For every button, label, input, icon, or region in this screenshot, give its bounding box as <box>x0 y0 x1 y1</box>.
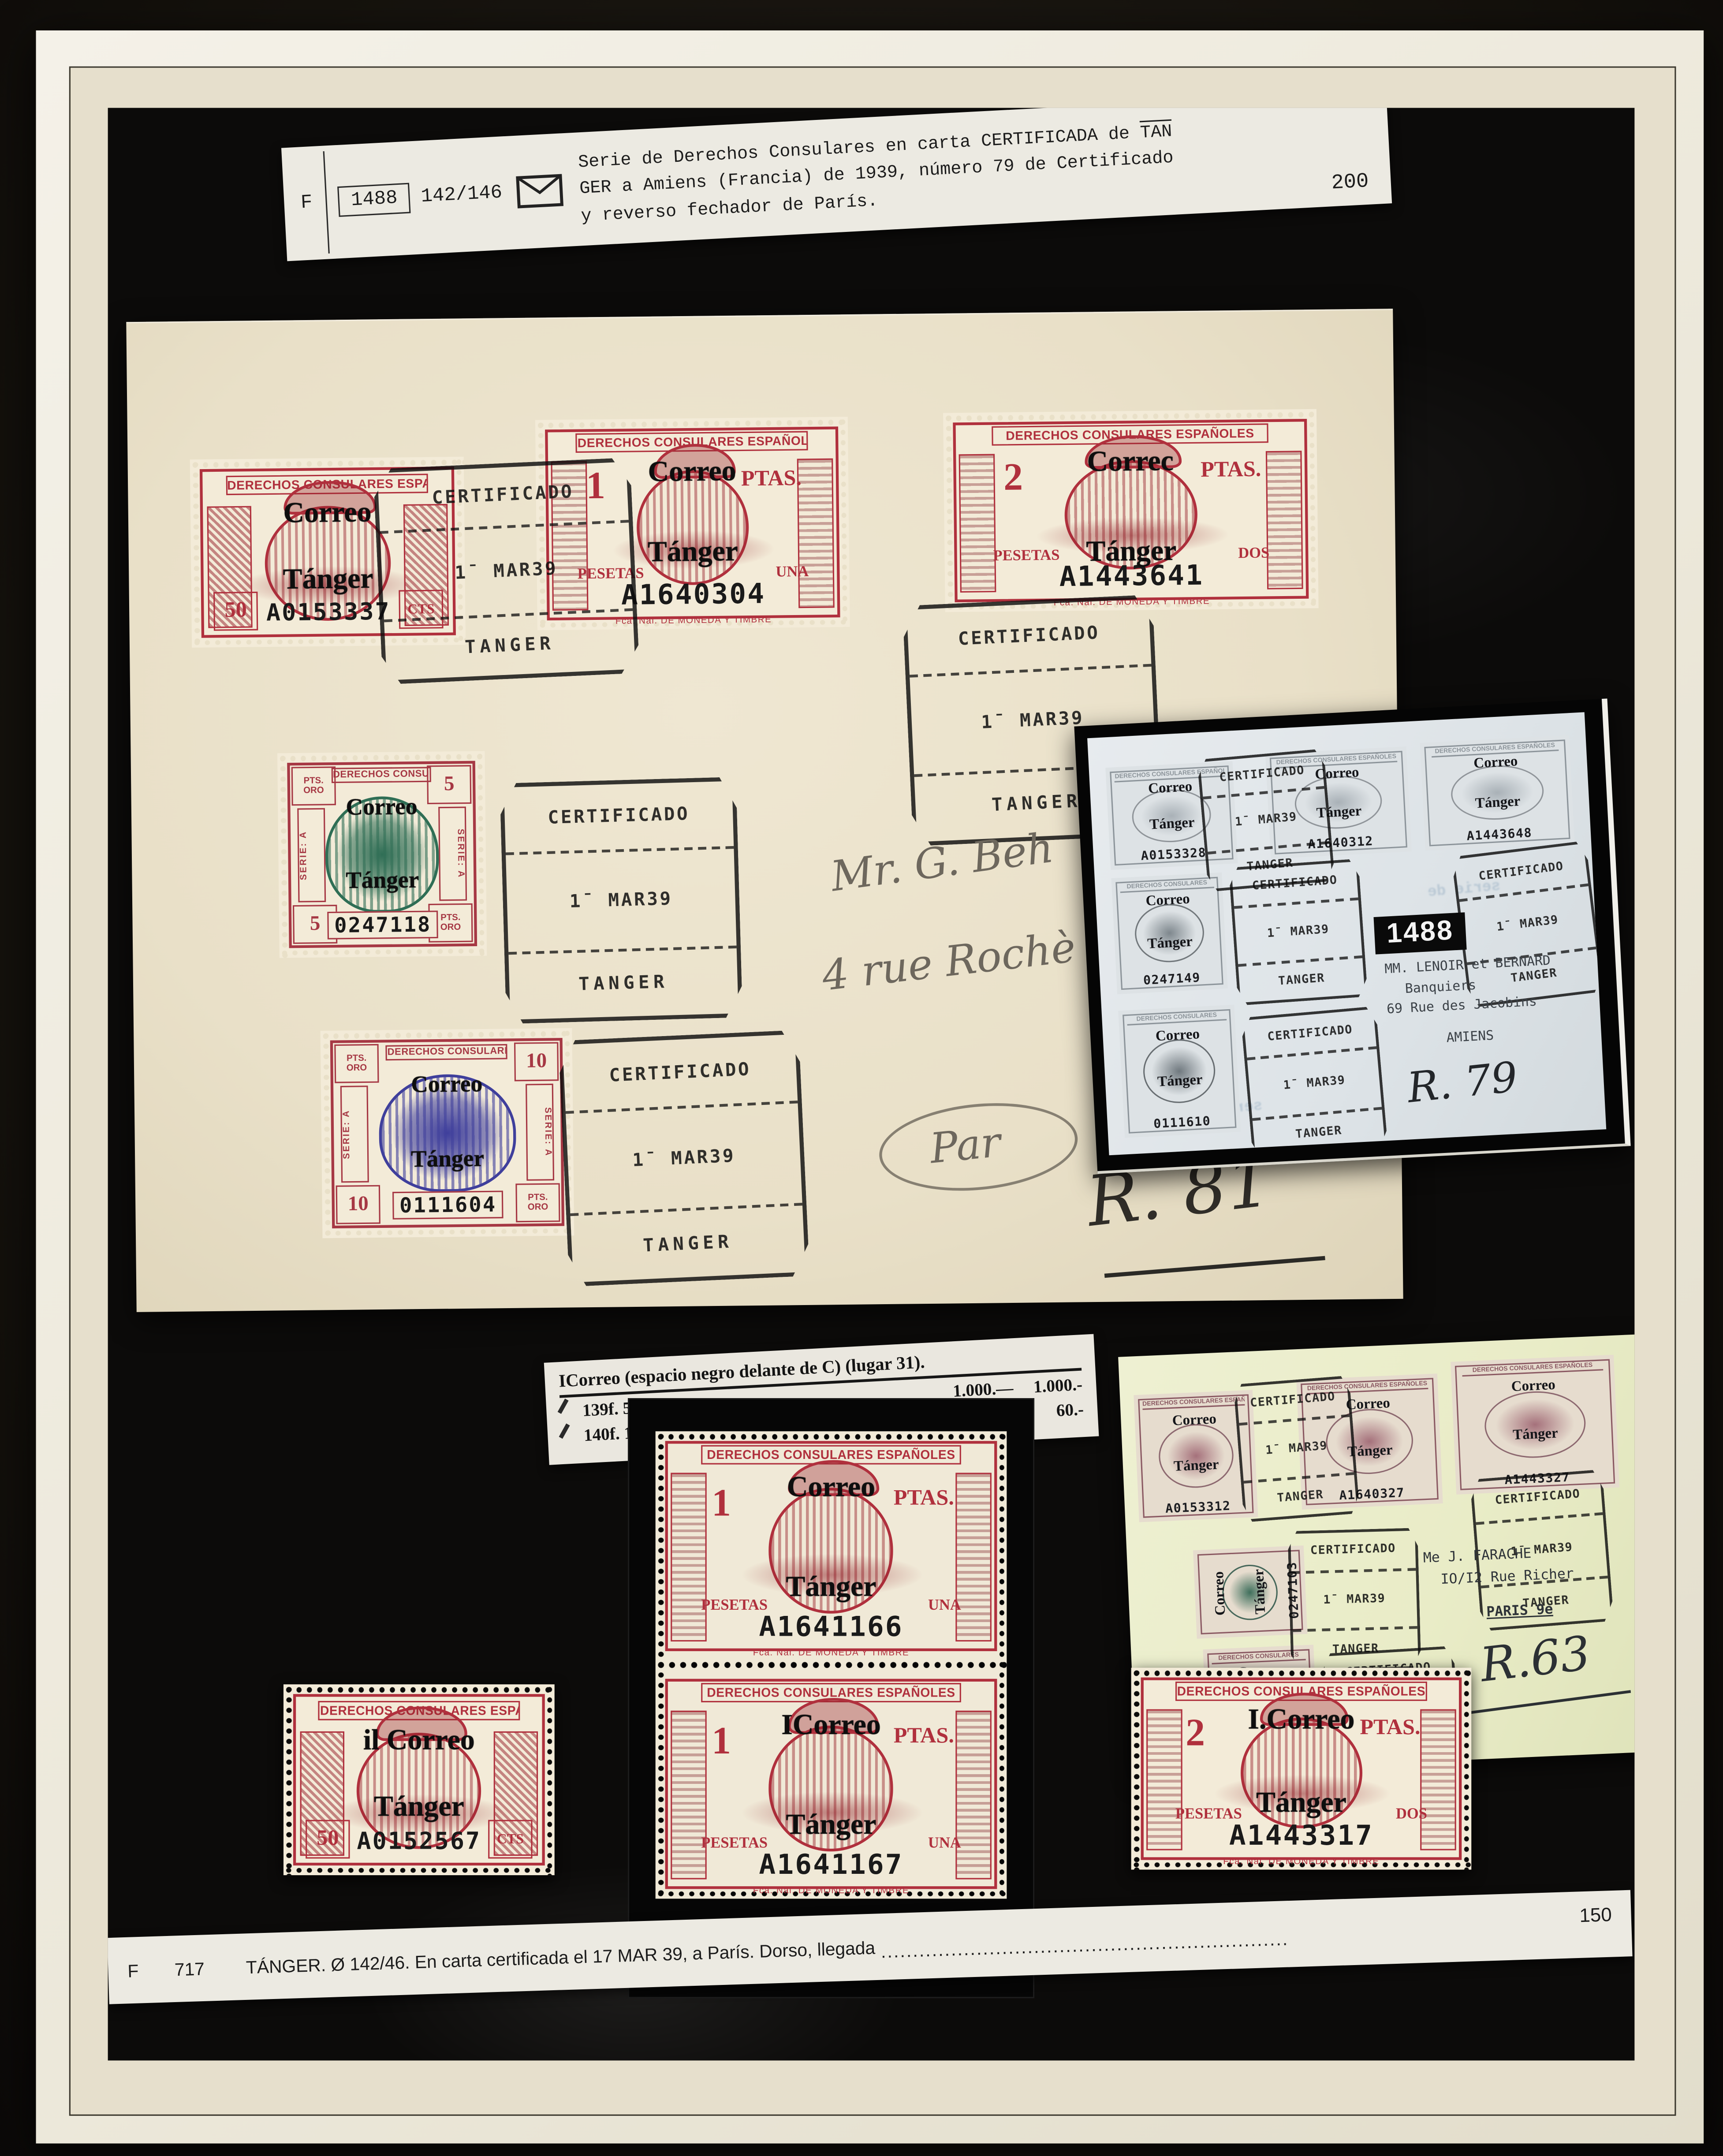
overprint-correo: il Correo <box>283 1723 555 1757</box>
envelope-icon <box>515 173 563 209</box>
registration-number: R. 79 <box>1405 1054 1520 1113</box>
label-prefix: F <box>127 1960 139 1981</box>
postmark-certificado: CERTIFICADO <box>906 599 1151 675</box>
postmark-date: 1ˉ MAR39 <box>1247 1047 1382 1120</box>
postmark-date: 1ˉ MAR39 <box>1203 786 1329 854</box>
stamp-serial: A0152567 <box>357 1828 481 1856</box>
catalog-number: 1488 <box>338 183 410 217</box>
price-value: 150 <box>1579 1903 1612 1926</box>
catalog-item-number: 140f. <box>583 1424 620 1447</box>
catalog-range: 142/146 <box>421 182 503 209</box>
cover-address: Me J. FARACHE IO/I2 Rue Richer PARIS 9e <box>1423 1542 1576 1627</box>
printer-imprint: Fca. Nal. DE MONEDA Y TIMBRE <box>1131 1857 1472 1867</box>
stamp-2ptas: DERECHOS CONSULARES ESPAÑOLES 2 PTAS. PE… <box>943 409 1319 612</box>
postmark-tanger: TANGER <box>384 612 635 680</box>
stamp-serial: 0111604 <box>392 1191 503 1220</box>
dot-leader: ........................................… <box>880 1919 1572 1961</box>
printer-imprint: Fca. Nal. DE MONEDA Y TIMBRE <box>656 1649 1007 1658</box>
certificado-postmark: CERTIFICADO 1ˉ MAR39 TANGER <box>1229 858 1368 1005</box>
stamp-serial: A1641167 <box>759 1847 903 1880</box>
black-stock-page: F 1488 142/146 Serie de Derechos Consula… <box>108 108 1635 2061</box>
stamp-10pts: DERECHOS CONSULARES PTS. ORO 10 SERIE: A… <box>321 1028 574 1238</box>
description-text: TÁNGER. Ø 142/46. En carta certificada e… <box>246 1936 876 1977</box>
certificado-postmark: CERTIFICADO 1ˉ MAR39 TANGER <box>373 458 640 685</box>
top-description-label: F 1488 142/146 Serie de Derechos Consula… <box>281 108 1392 261</box>
stamp-serial: A1640304 <box>621 577 766 612</box>
postmark-date: 1ˉ MAR39 <box>566 1100 802 1216</box>
pen-tick-icon <box>558 1399 580 1420</box>
pen-tick-icon <box>559 1424 581 1445</box>
postmark-date: 1ˉ MAR39 <box>506 846 737 955</box>
overprint-correo: Correo <box>656 1470 1007 1505</box>
overprint-correo: Correo <box>321 1070 573 1100</box>
overprint-correo: I.Correo <box>1131 1702 1472 1736</box>
stamp-serial: 0247118 <box>327 910 438 939</box>
overprint-tanger: Tánger <box>1131 1785 1472 1819</box>
catalog-item-number: 139f. <box>582 1399 619 1421</box>
catalog-number: 717 <box>174 1958 205 1979</box>
pair-stamp-top: DERECHOS CONSULARES ESPAÑOLES 1 PTAS. PE… <box>656 1431 1007 1661</box>
printer-imprint: Fca. Nal. DE MONEDA Y TIMBRE <box>656 1886 1007 1896</box>
photo-stamp-10pts: DERECHOS CONSULARES Correo Tánger 011161… <box>1118 1005 1241 1138</box>
postmark-date: 1ˉ MAR39 <box>1291 1568 1417 1632</box>
address-line2: 4 rue Rochè <box>820 924 1078 1001</box>
ink-underline <box>1466 1690 1631 1714</box>
overprint-tanger: Tánger <box>656 1569 1007 1604</box>
stamp-serial: A0153337 <box>266 599 391 628</box>
address-line: AMIENS <box>1446 1024 1555 1050</box>
postmark-certificado: CERTIFICADO <box>377 462 629 530</box>
mint-stamp-2ptas: DERECHOS CONSULARES ESPAÑOLES 2 PTAS. PE… <box>1131 1668 1472 1870</box>
overprint-tanger: Tánger <box>321 1144 573 1175</box>
stamp-serial: A1443317 <box>1229 1818 1373 1851</box>
item-number-1488: 1488 <box>1373 912 1466 954</box>
stamp-value: 50 <box>306 1820 350 1859</box>
postmark-date: 1ˉ MAR39 <box>1234 898 1362 966</box>
price-value: 200 <box>1331 170 1369 195</box>
label-prefix: F <box>295 151 330 255</box>
description-text: Serie de Derechos Consulares en carta CE… <box>578 118 1175 229</box>
certificado-postmark: CERTIFICADO 1ˉ MAR39 TANGER <box>1241 1006 1388 1155</box>
postmark-date: 1ˉ MAR39 <box>380 519 633 623</box>
overprint-correo: Correc <box>944 443 1317 481</box>
line1-overlined: TAN <box>1140 121 1173 143</box>
postmark-tanger: TANGER <box>508 948 738 1019</box>
stamp-value: 50 <box>213 592 258 631</box>
ink-underline <box>1104 1256 1325 1278</box>
album-page: F 1488 142/146 Serie de Derechos Consula… <box>36 30 1704 2144</box>
overprint-tanger: Tánger <box>944 533 1318 571</box>
stamp-header: DERECHOS CONSULARES <box>332 767 431 783</box>
pts-oro: PTS. ORO <box>515 1183 560 1222</box>
certificado-postmark: CERTIFICADO 1ˉ MAR39 TANGER <box>558 1030 810 1287</box>
photo-scene: F 1488 142/146 Serie de Derechos Consula… <box>0 0 1723 2156</box>
photo-stamp-2ptas: DERECHOS CONSULARES ESPAÑOLES Correo Tán… <box>1420 735 1574 850</box>
reverse-photo: de Vistas y serie de mal. P serie de 11 … <box>1074 698 1630 1174</box>
stamp-5pts: DERECHOS CONSULARES PTS. ORO 5 SERIE: A … <box>277 751 487 958</box>
stamp-pair: DERECHOS CONSULARES ESPAÑOLES 1 PTAS. PE… <box>656 1431 1007 1899</box>
black-mount: DERECHOS CONSULARES ESPAÑOLES 1 PTAS. PE… <box>629 1399 1033 1997</box>
postmark-date: 1ˉ MAR39 <box>1239 1414 1354 1483</box>
mint-stamp-50cts: DERECHOS CONSULARES ESPAÑOLES 50 A015256… <box>283 1684 555 1875</box>
address-line3-paris: Par <box>928 1119 1003 1174</box>
overprint-tanger: Tánger <box>283 1789 555 1824</box>
overprint-tanger: Tánger <box>656 1807 1007 1841</box>
photo-surface: de Vistas y serie de mal. P serie de 11 … <box>1087 712 1606 1155</box>
postmark-certificado: CERTIFICADO <box>563 1034 798 1111</box>
price-used: 1.000.- <box>1013 1375 1083 1399</box>
stamp-currency: CTS <box>488 1820 532 1859</box>
photo-address: MM. LENOIR et BERNARD Banquiers 69 Rue d… <box>1384 952 1555 1053</box>
certificado-postmark: CERTIFICADO 1ˉ MAR39 TANGER <box>1233 1376 1360 1522</box>
postmark-tanger: TANGER <box>571 1205 806 1282</box>
postmark-certificado: CERTIFICADO <box>1290 1531 1416 1571</box>
stamp-value: 10 <box>336 1185 380 1224</box>
pair-stamp-bottom: DERECHOS CONSULARES ESPAÑOLES 1 PTAS. PE… <box>656 1669 1007 1899</box>
stamp-serial: A1641166 <box>759 1610 903 1643</box>
photo-stamp-5pts: DERECHOS CONSULARES Correo Tánger 024714… <box>1111 873 1227 994</box>
address-line-paris: PARIS 9e <box>1486 1599 1576 1624</box>
registration-number: R.63 <box>1477 1626 1593 1693</box>
overprint-correo: Correo <box>278 792 485 822</box>
certificado-postmark: CERTIFICADO 1ˉ MAR39 TANGER <box>500 777 742 1024</box>
overprint-correo: ICorreo <box>656 1708 1007 1742</box>
stamp-header: DERECHOS CONSULARES <box>386 1044 507 1060</box>
overprint-tanger: Tánger <box>279 865 486 895</box>
postmark-certificado: CERTIFICADO <box>504 781 734 852</box>
